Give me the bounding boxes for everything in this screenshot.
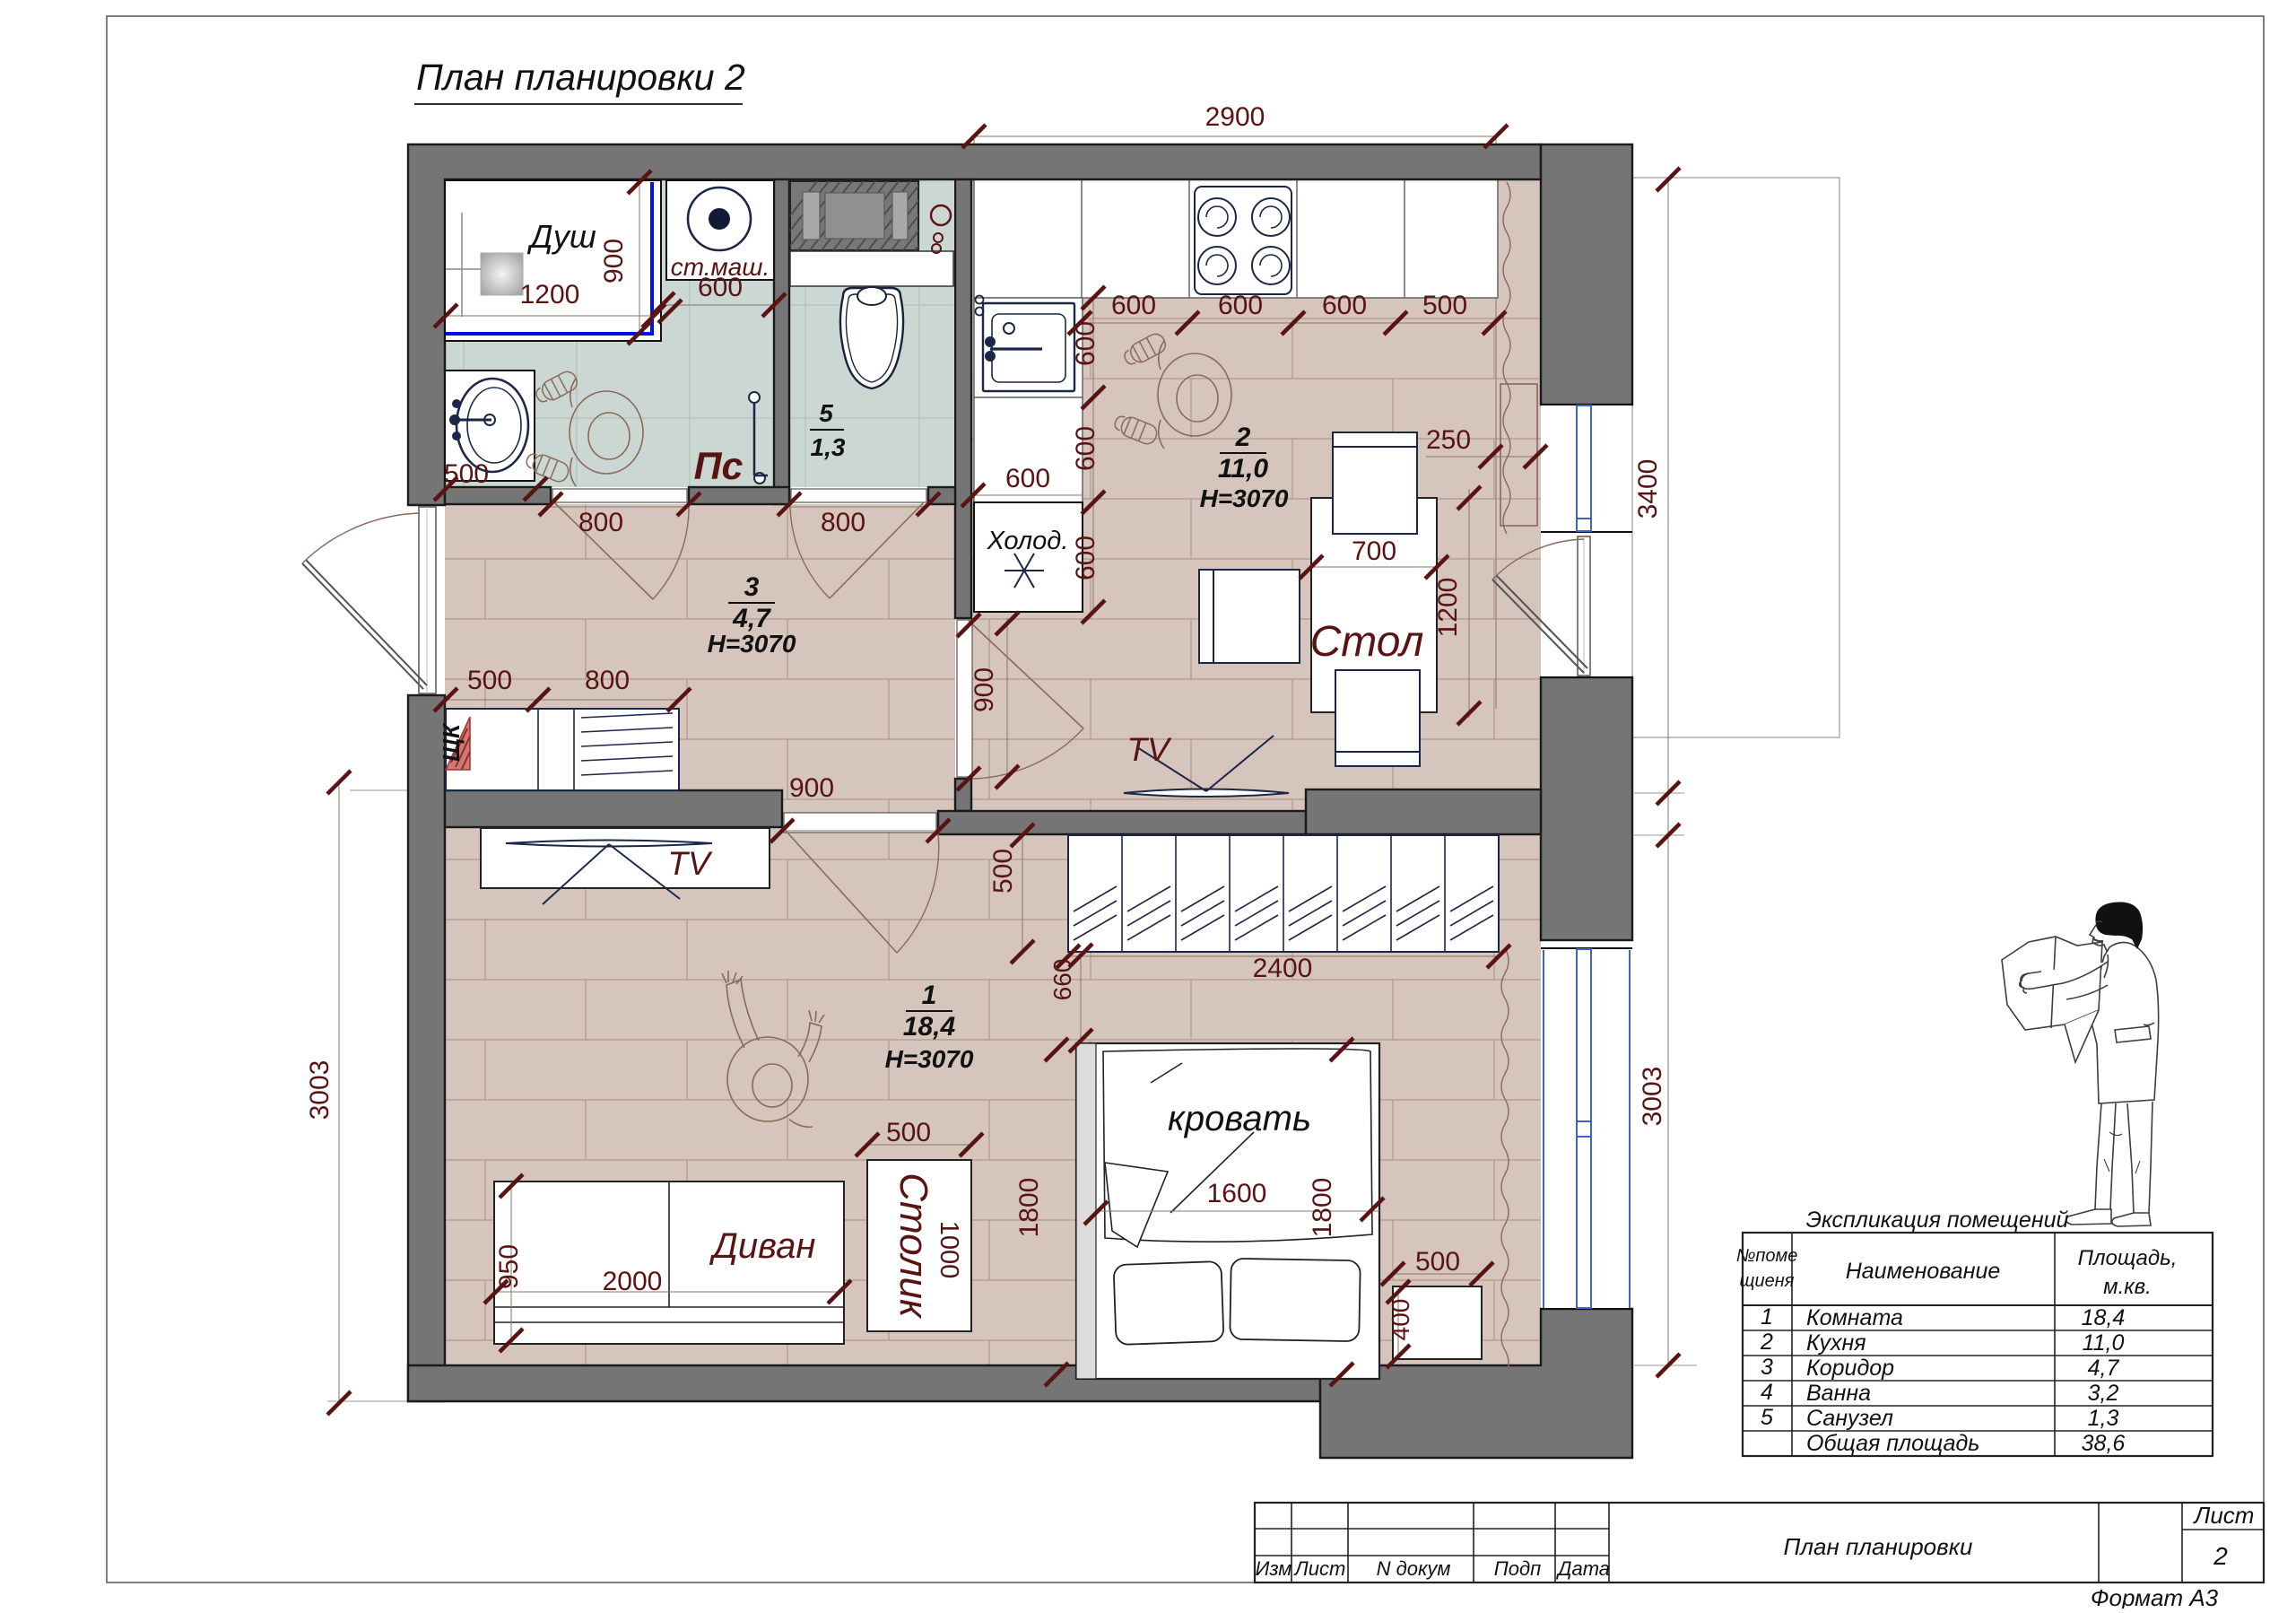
svg-text:Стол: Стол bbox=[1310, 618, 1424, 666]
svg-text:1800: 1800 bbox=[1014, 1178, 1044, 1238]
svg-text:2: 2 bbox=[2213, 1542, 2228, 1570]
svg-text:800: 800 bbox=[821, 508, 865, 537]
svg-text:18,4: 18,4 bbox=[903, 1012, 956, 1042]
svg-text:1600: 1600 bbox=[1207, 1179, 1267, 1208]
svg-text:2: 2 bbox=[1235, 423, 1251, 452]
svg-text:Экспликация помещений: Экспликация помещений bbox=[1806, 1208, 2069, 1233]
svg-text:500: 500 bbox=[1422, 291, 1467, 320]
svg-text:2000: 2000 bbox=[603, 1267, 663, 1296]
svg-text:3003: 3003 bbox=[305, 1060, 335, 1120]
svg-text:N докум: N докум bbox=[1377, 1557, 1451, 1580]
svg-text:кровать: кровать bbox=[1168, 1099, 1311, 1138]
svg-text:ЩК: ЩК bbox=[438, 722, 465, 762]
svg-text:600: 600 bbox=[1111, 291, 1156, 320]
svg-text:TV: TV bbox=[1126, 731, 1172, 768]
svg-text:Пс: Пс bbox=[694, 445, 744, 488]
svg-text:Лист: Лист bbox=[1293, 1557, 1346, 1580]
svg-text:Подп: Подп bbox=[1494, 1557, 1541, 1580]
svg-text:600: 600 bbox=[1071, 426, 1100, 471]
svg-text:щиеня: щиеня bbox=[1740, 1271, 1795, 1291]
svg-text:600: 600 bbox=[1322, 291, 1367, 320]
svg-text:3: 3 bbox=[1761, 1355, 1773, 1380]
svg-text:3,2: 3,2 bbox=[2088, 1381, 2119, 1406]
svg-text:Санузел: Санузел bbox=[1806, 1406, 1893, 1431]
svg-text:400: 400 bbox=[1387, 1299, 1414, 1341]
svg-text:Диван: Диван bbox=[709, 1226, 816, 1266]
svg-text:Комната: Комната bbox=[1806, 1305, 1903, 1330]
svg-text:900: 900 bbox=[789, 773, 834, 803]
svg-text:Изм: Изм bbox=[1256, 1557, 1292, 1580]
svg-text:1200: 1200 bbox=[520, 280, 580, 310]
svg-text:H=3070: H=3070 bbox=[885, 1045, 974, 1073]
svg-text:Холод.: Холод. bbox=[987, 527, 1069, 555]
svg-text:600: 600 bbox=[1218, 291, 1263, 320]
svg-text:900: 900 bbox=[970, 667, 999, 712]
svg-text:ст.маш.: ст.маш. bbox=[671, 253, 770, 281]
svg-text:Ванна: Ванна bbox=[1806, 1381, 1871, 1406]
svg-text:4: 4 bbox=[1761, 1380, 1773, 1405]
svg-text:Лист: Лист bbox=[2193, 1502, 2255, 1529]
svg-text:2400: 2400 bbox=[1253, 954, 1313, 983]
svg-text:500: 500 bbox=[467, 666, 512, 695]
svg-text:500: 500 bbox=[444, 459, 489, 489]
svg-text:Дата: Дата bbox=[1555, 1557, 1610, 1580]
svg-text:38,6: 38,6 bbox=[2082, 1431, 2126, 1456]
svg-text:250: 250 bbox=[1426, 425, 1471, 455]
svg-text:№поме: №поме bbox=[1736, 1246, 1798, 1266]
svg-text:Общая площадь: Общая площадь bbox=[1806, 1431, 1979, 1456]
svg-text:1: 1 bbox=[1761, 1304, 1773, 1330]
svg-text:м.кв.: м.кв. bbox=[2103, 1275, 2152, 1299]
svg-text:500: 500 bbox=[1415, 1247, 1460, 1277]
svg-text:1200: 1200 bbox=[1433, 578, 1463, 638]
svg-text:1,3: 1,3 bbox=[2088, 1406, 2119, 1431]
svg-text:600: 600 bbox=[1071, 536, 1100, 580]
svg-text:План планировки: План планировки bbox=[1784, 1533, 1973, 1560]
svg-text:600: 600 bbox=[1071, 321, 1100, 366]
svg-text:800: 800 bbox=[585, 666, 630, 695]
svg-text:1: 1 bbox=[922, 981, 937, 1010]
svg-text:18,4: 18,4 bbox=[2082, 1305, 2126, 1330]
svg-text:Наименование: Наименование bbox=[1846, 1259, 2001, 1284]
svg-text:3: 3 bbox=[744, 572, 760, 602]
svg-text:H=3070: H=3070 bbox=[1200, 484, 1289, 512]
svg-text:Столик: Столик bbox=[891, 1173, 935, 1320]
svg-text:H=3070: H=3070 bbox=[708, 630, 796, 658]
svg-text:500: 500 bbox=[988, 849, 1018, 894]
svg-text:3003: 3003 bbox=[1638, 1067, 1667, 1127]
svg-text:5: 5 bbox=[1761, 1405, 1773, 1430]
svg-text:900: 900 bbox=[599, 239, 629, 283]
svg-text:4,7: 4,7 bbox=[2088, 1356, 2120, 1381]
svg-text:2900: 2900 bbox=[1205, 102, 1265, 132]
svg-text:1800: 1800 bbox=[1308, 1178, 1337, 1238]
svg-text:Коридор: Коридор bbox=[1806, 1356, 1894, 1381]
svg-text:2: 2 bbox=[1760, 1330, 1773, 1355]
svg-text:Формат А3: Формат А3 bbox=[2091, 1584, 2219, 1609]
svg-text:660: 660 bbox=[1048, 959, 1076, 1001]
svg-text:11,0: 11,0 bbox=[2083, 1330, 2125, 1356]
svg-text:950: 950 bbox=[494, 1244, 524, 1289]
svg-text:3400: 3400 bbox=[1633, 459, 1663, 519]
svg-text:Душ: Душ bbox=[526, 218, 596, 255]
svg-text:5: 5 bbox=[819, 399, 833, 427]
svg-text:600: 600 bbox=[1005, 464, 1050, 493]
svg-text:500: 500 bbox=[886, 1118, 931, 1147]
svg-text:1000: 1000 bbox=[935, 1221, 963, 1279]
svg-text:11,0: 11,0 bbox=[1218, 454, 1268, 484]
svg-text:1,3: 1,3 bbox=[811, 433, 846, 461]
svg-text:План планировки 2: План планировки 2 bbox=[416, 57, 745, 98]
svg-text:800: 800 bbox=[578, 508, 623, 537]
svg-text:Площадь,: Площадь, bbox=[2078, 1246, 2178, 1270]
svg-text:Кухня: Кухня bbox=[1806, 1330, 1866, 1356]
svg-text:700: 700 bbox=[1352, 536, 1396, 566]
svg-text:TV: TV bbox=[667, 845, 713, 882]
